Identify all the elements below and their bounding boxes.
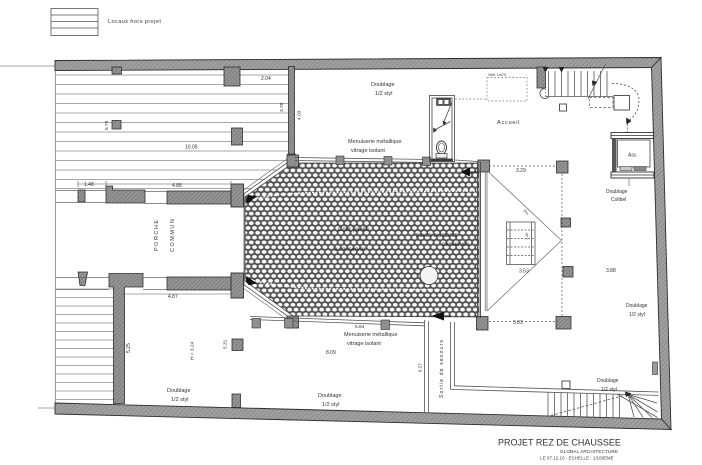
svg-text:Cour pavée: Cour pavée [338, 227, 370, 233]
svg-text:PROJET REZ DE CHAUSSEE: PROJET REZ DE CHAUSSEE [498, 438, 621, 448]
svg-text:GLOBAL ARCHITECTURE: GLOBAL ARCHITECTURE [560, 449, 618, 454]
svg-text:COMMUN: COMMUN [170, 218, 176, 252]
svg-text:3.29: 3.29 [516, 168, 526, 174]
svg-text:1/2 styl: 1/2 styl [601, 387, 617, 393]
svg-text:1/2 styl: 1/2 styl [322, 402, 339, 408]
svg-text:Doublage: Doublage [371, 82, 395, 88]
svg-text:1/2 styl: 1/2 styl [375, 91, 392, 97]
svg-text:1/2 styl: 1/2 styl [171, 397, 188, 403]
svg-text:1.40: 1.40 [525, 233, 529, 240]
svg-text:vitrage isolant: vitrage isolant [347, 341, 381, 347]
svg-text:1.48: 1.48 [84, 182, 94, 188]
svg-text:5.31: 5.31 [223, 339, 229, 349]
svg-text:4.88: 4.88 [172, 183, 182, 189]
svg-text:5.79: 5.79 [104, 120, 110, 130]
svg-text:6.27: 6.27 [418, 363, 423, 372]
svg-text:3.88: 3.88 [606, 268, 616, 274]
svg-text:4.03: 4.03 [297, 110, 303, 120]
svg-text:2.04: 2.04 [261, 76, 271, 82]
svg-text:Menuiserie métallique: Menuiserie métallique [348, 139, 402, 145]
svg-text:8.09: 8.09 [326, 350, 336, 356]
svg-text:Menuiserie métallique: Menuiserie métallique [344, 332, 398, 338]
svg-text:3.78: 3.78 [279, 102, 285, 112]
svg-text:Vide 1m70: Vide 1m70 [488, 73, 506, 77]
svg-text:à conserver: à conserver [334, 247, 365, 253]
svg-text:Doublage: Doublage [626, 303, 648, 309]
svg-text:LE 07.12.10 - ECHELLE : 1/: LE 07.12.10 - ECHELLE : 1/100EME [540, 456, 613, 461]
svg-text:1/2 styl: 1/2 styl [629, 312, 645, 318]
svg-text:Asc.: Asc. [628, 153, 638, 159]
svg-text:Sortie de secours: Sortie de secours [439, 339, 445, 398]
svg-text:4.87: 4.87 [168, 294, 178, 300]
svg-text:Doublage: Doublage [167, 388, 191, 394]
svg-text:Locaux hors projet: Locaux hors projet [108, 19, 161, 25]
svg-text:Doublage: Doublage [318, 393, 342, 399]
svg-text:3.03: 3.03 [513, 320, 523, 326]
svg-text:vitrage isolant: vitrage isolant [351, 148, 385, 154]
svg-text:conservés: conservés [442, 242, 469, 248]
svg-text:10.05: 10.05 [185, 145, 198, 151]
svg-text:5.84: 5.84 [355, 324, 365, 330]
svg-text:Doublage: Doublage [606, 189, 628, 195]
svg-text:3.53: 3.53 [519, 269, 529, 275]
svg-text:Accueil: Accueil [497, 120, 520, 126]
svg-text:5.25: 5.25 [126, 343, 132, 353]
svg-text:PORCHE: PORCHE [154, 218, 160, 251]
svg-text:Colibel: Colibel [611, 197, 626, 203]
svg-text:H = 3.24: H = 3.24 [190, 341, 196, 360]
svg-text:pavés existants: pavés existants [416, 233, 457, 239]
svg-text:Doublage: Doublage [597, 378, 619, 384]
